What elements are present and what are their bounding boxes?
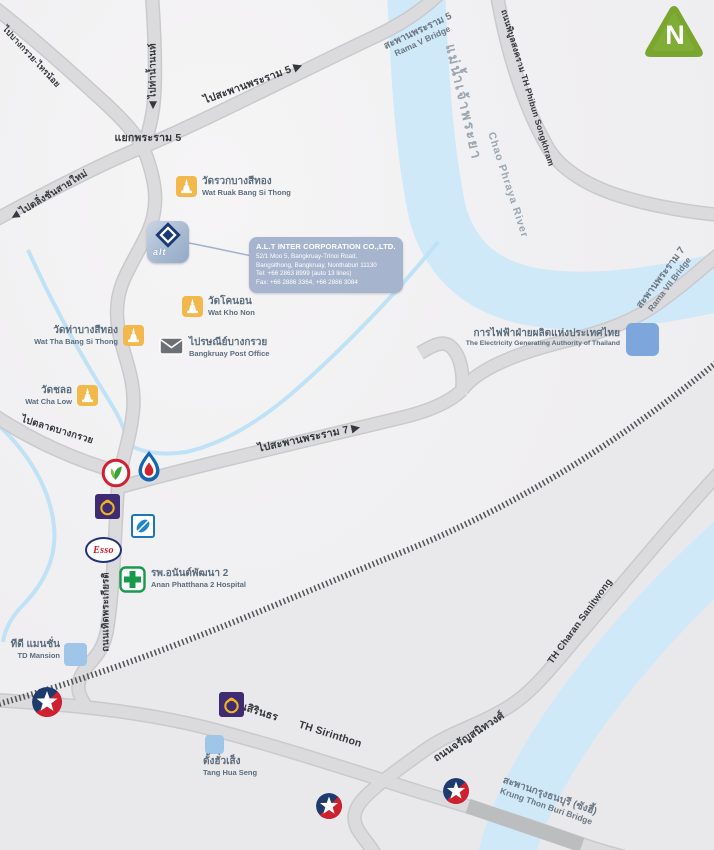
temple-icon <box>123 325 144 346</box>
road-label-junction-rama5: แยกพระราม 5 <box>115 132 182 144</box>
poi-wat-cha-low: วัดชลอ Wat Cha Low <box>12 385 98 406</box>
wat-ruak-th: วัดรวกบางสีทอง <box>202 176 291 188</box>
egat-th: การไฟฟ้าฝ่ายผลิตแห่งประเทศไทย <box>433 328 620 340</box>
tang-hua-seng-th: ตั้งฮั่วเส็ง <box>203 756 257 768</box>
wat-cha-low-th: วัดชลอ <box>12 385 72 397</box>
td-mansion-th: ทีดี แมนชั่น <box>8 639 60 651</box>
post-office-th: ไปรษณีย์บางกรวย <box>189 337 269 349</box>
tang-hua-seng-en: Tang Hua Seng <box>203 768 257 777</box>
leaf-square-icon <box>131 514 155 538</box>
bangchak-station-icon <box>101 458 131 488</box>
poi-hospital: รพ.อนันต์พัฒนา 2 Anan Phatthana 2 Hospit… <box>119 566 246 593</box>
wat-ruak-en: Wat Ruak Bang Si Thong <box>202 188 291 197</box>
temple-icon <box>77 385 98 406</box>
poi-tang-hua-seng: ตั้งฮั่วเส็ง Tang Hua Seng <box>203 756 257 777</box>
td-mansion-building-icon <box>64 643 87 666</box>
company-logo-tile: alt <box>147 221 189 263</box>
ptt-station-icon <box>135 450 163 482</box>
esso-wordmark: Esso <box>93 545 114 556</box>
hospital-en: Anan Phatthana 2 Hospital <box>151 580 246 589</box>
wat-kho-non-th: วัดโคนอน <box>208 296 255 308</box>
td-mansion-en: TD Mansion <box>8 651 60 660</box>
caltex-station-icon <box>32 687 62 717</box>
caltex-station-icon <box>316 793 342 819</box>
company-fax: Fax: +66 2886 3364, +66 2886 3084 <box>256 279 396 288</box>
company-info-box: A.L.T INTER CORPORATION CO.,LTD. 52/1 Mo… <box>249 237 403 293</box>
scb-bank-icon <box>95 494 120 519</box>
temple-icon <box>176 176 197 197</box>
scb-bank-icon <box>219 692 244 717</box>
poi-wat-tha-bang-si-thong: วัดท่าบางสีทอง Wat Tha Bang Si Thong <box>30 325 144 346</box>
temple-icon <box>182 296 203 317</box>
poi-wat-ruak: วัดรวกบางสีทอง Wat Ruak Bang Si Thong <box>176 176 291 197</box>
road-label-tha-nam-non: ◀ ไปท่าน้ำนนท์ <box>149 43 160 108</box>
hospital-cross-icon <box>119 566 146 593</box>
egat-en: The Electricity Generating Authority of … <box>433 340 620 348</box>
company-address-1: 52/1 Moo 5, Bangkruay-Trinoi Road, <box>256 253 396 262</box>
road-label-thoet-phra-kiat: ถนนเทิดพระเกียรติ <box>102 572 113 652</box>
post-office-en: Bangkruay Post Office <box>189 349 269 358</box>
caltex-station-icon <box>443 778 469 804</box>
tang-hua-seng-building-icon <box>205 735 224 754</box>
wat-cha-low-en: Wat Cha Low <box>12 397 72 406</box>
egat-building-icon <box>626 323 659 356</box>
company-leader-line <box>189 243 252 256</box>
alt-wordmark: alt <box>153 247 167 257</box>
envelope-icon <box>159 337 184 355</box>
map-canvas: N ไปสะพานพระราม 5 ▶ แยกพระราม 5 ◀ ไปท่าน… <box>0 0 714 850</box>
company-tel: Tel: +66 2863 8999 (auto 13 lines) <box>256 270 396 279</box>
company-address-2: Bangsithong, Bangkruay, Nonthaburi 11130 <box>256 262 396 271</box>
poi-wat-kho-non: วัดโคนอน Wat Kho Non <box>182 296 255 317</box>
esso-station-icon: Esso <box>85 537 122 563</box>
poi-egat: การไฟฟ้าฝ่ายผลิตแห่งประเทศไทย The Electr… <box>433 328 620 348</box>
poi-post-office: ไปรษณีย์บางกรวย Bangkruay Post Office <box>159 337 269 358</box>
poi-td-mansion: ทีดี แมนชั่น TD Mansion <box>8 639 60 660</box>
wat-tha-en: Wat Tha Bang Si Thong <box>30 337 118 346</box>
company-name: A.L.T INTER CORPORATION CO.,LTD. <box>256 242 396 251</box>
compass-north-letter: N <box>657 20 693 51</box>
wat-tha-th: วัดท่าบางสีทอง <box>30 325 118 337</box>
hospital-th: รพ.อนันต์พัฒนา 2 <box>151 568 246 580</box>
wat-kho-non-en: Wat Kho Non <box>208 308 255 317</box>
